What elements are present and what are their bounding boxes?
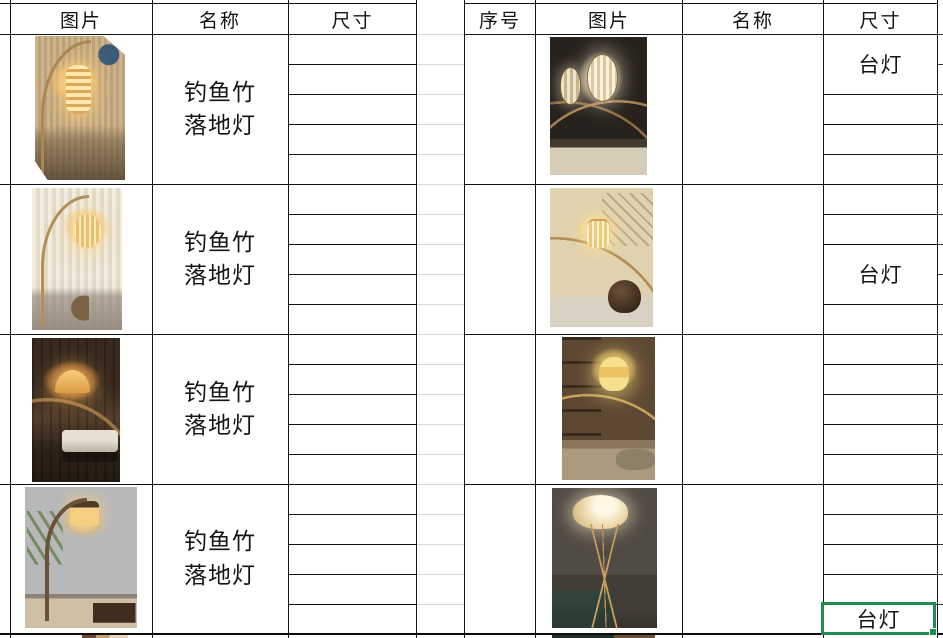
- name-cell[interactable]: 钓鱼竹落地灯: [153, 35, 287, 183]
- size-cells-column-right[interactable]: [824, 34, 937, 634]
- index-cell[interactable]: [465, 335, 535, 483]
- gridline-strip: [417, 34, 464, 634]
- right-header-name[interactable]: 名称: [683, 4, 823, 34]
- size-cells-column-left[interactable]: [289, 34, 416, 634]
- index-cell[interactable]: [465, 35, 535, 183]
- name-text: 钓鱼竹落地灯: [183, 376, 257, 443]
- fill-handle[interactable]: [929, 628, 937, 636]
- name-cell-right[interactable]: [683, 35, 823, 183]
- grid-line: [0, 633, 943, 635]
- name-cell[interactable]: 钓鱼竹落地灯: [153, 335, 287, 483]
- gridline-strip: [938, 34, 943, 634]
- name-cell[interactable]: 钓鱼竹落地灯: [153, 485, 287, 632]
- name-text: 钓鱼竹落地灯: [183, 76, 257, 143]
- grid-line: [10, 0, 11, 638]
- index-cell[interactable]: [465, 185, 535, 333]
- left-header-name[interactable]: 名称: [153, 4, 287, 34]
- selected-cell[interactable]: 台灯: [821, 602, 936, 635]
- product-photo-l2[interactable]: [32, 188, 122, 330]
- name-cell-right[interactable]: [683, 185, 823, 333]
- spreadsheet-canvas: 图片 名称 尺寸 序号 图片 名称 尺寸 钓鱼竹落地灯 钓鱼竹落地灯 钓鱼竹落地…: [0, 0, 943, 638]
- name-cell-right[interactable]: [683, 485, 823, 632]
- right-header-image[interactable]: 图片: [536, 4, 682, 34]
- product-photo-r4[interactable]: [552, 488, 657, 628]
- product-photo-l1[interactable]: [35, 36, 125, 180]
- name-cell-right[interactable]: [683, 335, 823, 483]
- right-header-size[interactable]: 尺寸: [824, 4, 937, 34]
- name-text: 钓鱼竹落地灯: [183, 525, 257, 592]
- product-photo-r3[interactable]: [562, 337, 655, 480]
- index-cell[interactable]: [465, 485, 535, 632]
- right-header-index[interactable]: 序号: [465, 4, 535, 34]
- product-photo-l4[interactable]: [25, 487, 137, 628]
- name-text: 钓鱼竹落地灯: [183, 226, 257, 293]
- left-header-image[interactable]: 图片: [11, 4, 151, 34]
- left-header-size[interactable]: 尺寸: [289, 4, 416, 34]
- size-cell-taideng[interactable]: 台灯: [824, 35, 937, 93]
- product-photo-l3[interactable]: [32, 338, 120, 482]
- grid-line: [535, 0, 536, 638]
- product-photo-r2[interactable]: [550, 188, 653, 327]
- size-cell-taideng[interactable]: 台灯: [824, 245, 937, 303]
- name-cell[interactable]: 钓鱼竹落地灯: [153, 185, 287, 333]
- selected-cell-text: 台灯: [857, 604, 901, 634]
- product-photo-r1[interactable]: [550, 37, 647, 175]
